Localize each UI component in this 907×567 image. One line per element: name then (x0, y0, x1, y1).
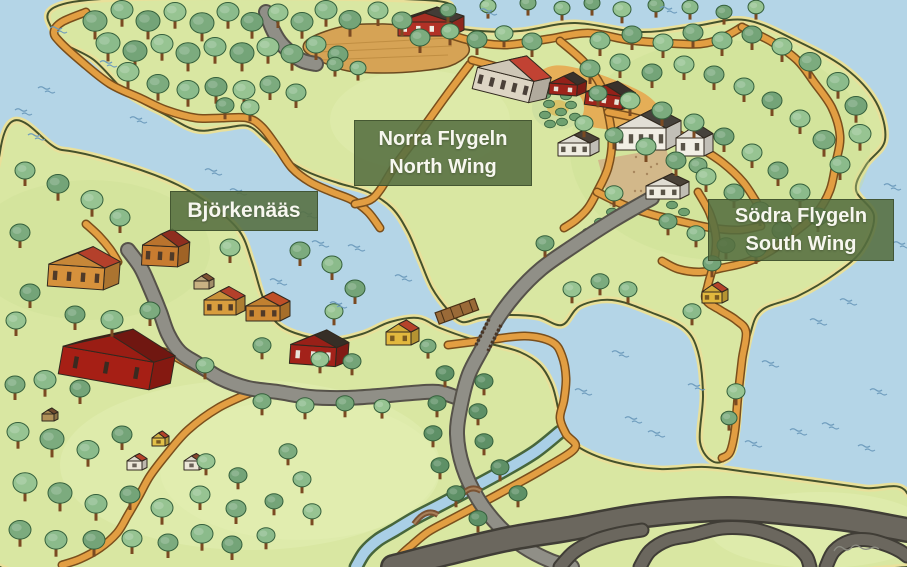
window-icon (94, 274, 99, 283)
wave-mark (612, 351, 629, 357)
window-icon (80, 273, 85, 282)
window-icon (158, 251, 163, 260)
wave-mark (15, 109, 32, 115)
label-bjorkenaas: Björkenääs (170, 191, 318, 231)
window-icon (629, 134, 633, 143)
wave-mark (790, 429, 807, 435)
window-icon (568, 87, 573, 92)
wave-mark (870, 389, 887, 395)
window-icon (295, 350, 300, 358)
tree-icon (290, 242, 310, 266)
label-south-wing-english: South Wing (746, 230, 857, 258)
estate-map: Björkenääs Norra Flygeln North Wing Södr… (0, 0, 907, 567)
wave-mark (893, 242, 907, 248)
window-icon (430, 26, 434, 32)
window-icon (403, 336, 407, 342)
window-icon (572, 147, 576, 153)
window-icon (695, 143, 699, 151)
window-icon (272, 310, 276, 316)
window-icon (561, 147, 565, 153)
hedge-bush-icon (556, 108, 567, 116)
window-icon (170, 252, 175, 261)
tree-icon (554, 1, 570, 20)
window-icon (156, 440, 160, 443)
wave-mark (395, 275, 412, 281)
label-north-wing-swedish: Norra Flygeln (379, 125, 508, 153)
window-icon (218, 304, 222, 310)
window-icon (146, 251, 151, 260)
wave-mark (205, 169, 222, 175)
wave-mark (810, 319, 827, 325)
label-north-wing-english: North Wing (389, 153, 497, 181)
window-icon (705, 295, 709, 300)
wave-mark (840, 299, 857, 305)
hedge-bush-icon (557, 118, 568, 126)
window-icon (681, 143, 685, 151)
hedge-bush-icon (667, 201, 678, 209)
hedge-bush-icon (566, 101, 577, 109)
window-icon (715, 295, 719, 300)
window-icon (250, 310, 254, 316)
window-icon (53, 271, 58, 280)
tree-icon (584, 0, 600, 16)
tree-icon (613, 2, 631, 24)
window-icon (390, 336, 394, 342)
wave-mark (348, 245, 365, 251)
window-icon (229, 304, 233, 310)
wave-mark (625, 417, 642, 423)
tree-icon (682, 0, 698, 19)
wave-mark (745, 441, 762, 447)
window-icon (659, 134, 663, 143)
window-icon (261, 310, 265, 316)
label-bjorkenaas-text: Björkenääs (187, 199, 300, 223)
window-icon (554, 86, 559, 91)
gravel-dot (634, 190, 636, 192)
wave-mark (312, 241, 329, 247)
window-icon (583, 147, 587, 153)
wave-mark (858, 445, 875, 451)
gravel-dot (650, 166, 652, 168)
window-icon (672, 190, 676, 196)
window-icon (661, 190, 665, 196)
tree-icon (325, 304, 343, 326)
tree-icon (520, 0, 536, 16)
gravel-dot (656, 163, 658, 165)
map-illustration (0, 0, 907, 567)
hedge-bush-icon (540, 111, 551, 119)
wave-mark (38, 87, 55, 93)
wave-mark (270, 279, 287, 285)
window-icon (67, 272, 72, 281)
window-icon (614, 99, 619, 105)
hedge-bush-icon (679, 208, 690, 216)
label-north-wing: Norra Flygeln North Wing (354, 120, 532, 186)
hedge-bush-icon (544, 100, 555, 108)
wave-mark (762, 361, 779, 367)
window-icon (189, 464, 193, 468)
window-icon (132, 464, 136, 468)
hedge-bush-icon (545, 120, 556, 128)
window-icon (207, 304, 211, 310)
wave-mark (130, 117, 147, 123)
gravel-dot (646, 173, 648, 175)
label-south-wing-swedish: Södra Flygeln (735, 202, 867, 230)
wave-mark (575, 389, 592, 395)
tree-icon (322, 256, 342, 280)
wave-mark (822, 423, 839, 429)
tree-icon (648, 0, 664, 18)
window-icon (650, 190, 654, 196)
tree-icon (748, 0, 764, 19)
gravel-dot (635, 156, 637, 158)
label-south-wing: Södra Flygeln South Wing (708, 199, 894, 261)
wave-mark (884, 184, 901, 190)
tree-icon (345, 280, 365, 304)
wave-mark (648, 431, 665, 437)
gravel-dot (640, 190, 642, 192)
gravel-dot (633, 171, 635, 173)
